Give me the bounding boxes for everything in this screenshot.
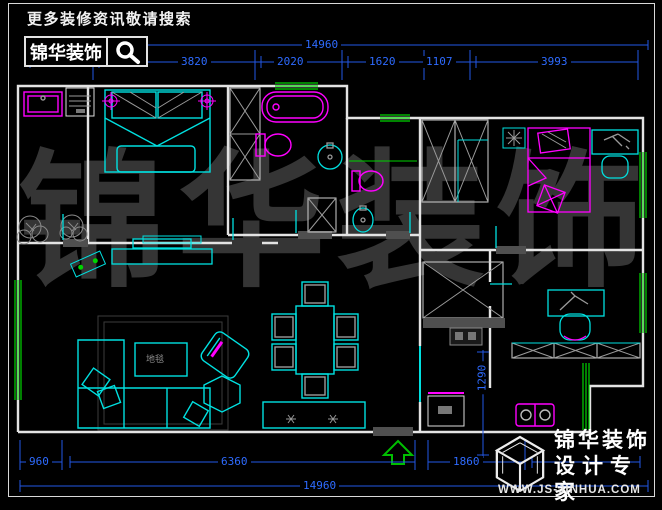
ceiling-lamp-icon: [198, 92, 216, 110]
footer-brand: 锦华装饰: [554, 428, 658, 454]
dim-bottom-segment: 1860: [450, 456, 483, 468]
window-left: [15, 280, 21, 400]
dim-top-total: 14960: [302, 39, 341, 51]
plant-icon: [17, 216, 48, 244]
closet-study: [512, 343, 640, 358]
company-logo-block: 锦华装饰 设计专家 WWW.JS-JINHUA.COM: [492, 428, 658, 506]
dim-top-segment: 1107: [423, 56, 456, 68]
dim-bottom-total: 14960: [300, 480, 339, 492]
window-top: [275, 83, 318, 89]
entry-arrow-up-icon: [384, 441, 412, 464]
dim-top-segment: 1620: [366, 56, 399, 68]
door-leaves: [63, 210, 512, 284]
single-bed: [528, 128, 590, 213]
dining-set: [272, 282, 358, 398]
bathtub-icon: [262, 92, 328, 122]
search-hint-text: 更多装修资讯敬请搜索: [27, 8, 192, 29]
coffee-table-label: 地毯: [146, 352, 164, 365]
plant-icon: [60, 215, 87, 241]
footer-tagline: 设计专家: [554, 454, 658, 506]
wall-light: [71, 251, 106, 277]
dim-bottom-segment: 960: [26, 456, 52, 468]
washbasin-icon: [318, 143, 342, 169]
brand-search-box: 锦华装饰: [24, 36, 148, 67]
footer-url: WWW.JS-JINHUA.COM: [498, 484, 641, 496]
nightstand: [503, 128, 525, 148]
washing-machine: [66, 88, 94, 116]
desk-study: [548, 290, 604, 340]
kitchen-cabinet: [423, 262, 505, 328]
laundry-sink-icon: [24, 92, 62, 116]
stove: [450, 328, 482, 345]
dim-top-segment: 3820: [178, 56, 211, 68]
kitchen-sink-icon: [516, 404, 554, 426]
toilet-icon: [352, 171, 383, 191]
wardrobe-bedroom2: [422, 120, 488, 202]
dim-kitchen-depth: 1290: [476, 362, 488, 395]
sideboard: [263, 402, 365, 428]
window-step: [380, 115, 410, 121]
brand-name: 锦华装饰: [24, 36, 108, 67]
window-right-upper: [640, 152, 646, 218]
washbasin-icon: [353, 206, 373, 232]
fridge: [428, 393, 464, 426]
toilet-icon: [256, 134, 291, 156]
magnifier-icon: [106, 36, 148, 67]
desk-bedroom2: [592, 130, 638, 178]
double-bed: [105, 90, 210, 172]
dim-bottom-segment: 6360: [218, 456, 251, 468]
floorplan-screenshot: 锦 华 装 饰: [0, 0, 662, 510]
window-kitchen: [583, 363, 589, 430]
window-right-lower: [640, 273, 646, 333]
dim-top-segment: 3993: [538, 56, 571, 68]
dim-top-segment: 2020: [274, 56, 307, 68]
living-room-carpet: [98, 316, 228, 430]
armchair: [199, 330, 251, 381]
closet-hall: [308, 198, 336, 232]
